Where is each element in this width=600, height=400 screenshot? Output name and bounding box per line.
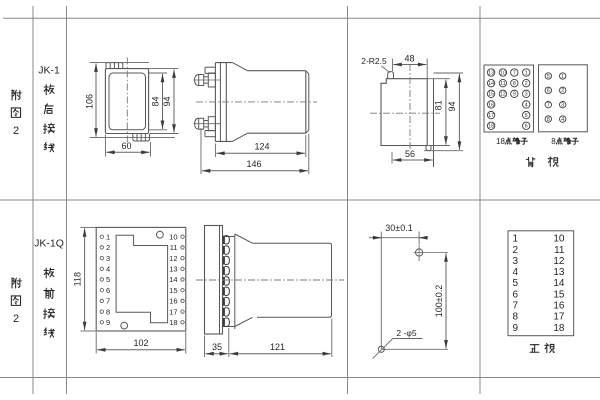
svg-text:8: 8 — [513, 81, 516, 87]
svg-text:10: 10 — [553, 234, 565, 245]
svg-text:12: 12 — [553, 256, 565, 267]
svg-text:15: 15 — [169, 286, 177, 295]
svg-text:106: 106 — [84, 94, 94, 109]
svg-text:9: 9 — [513, 323, 519, 334]
svg-text:9: 9 — [106, 318, 110, 327]
svg-text:48: 48 — [404, 53, 414, 63]
svg-text:3: 3 — [513, 256, 519, 267]
svg-text:14: 14 — [488, 81, 494, 87]
svg-text:4: 4 — [106, 265, 110, 274]
svg-text:94: 94 — [162, 96, 172, 106]
svg-text:10: 10 — [169, 232, 177, 241]
svg-text:17: 17 — [553, 312, 565, 323]
svg-text:16: 16 — [169, 297, 177, 306]
svg-text:1: 1 — [106, 232, 110, 241]
svg-text:5: 5 — [547, 74, 550, 80]
svg-text:5: 5 — [106, 275, 110, 284]
svg-text:17: 17 — [488, 113, 494, 119]
svg-text:118: 118 — [73, 272, 83, 286]
svg-text:146: 146 — [246, 159, 261, 169]
svg-text:3: 3 — [106, 254, 110, 263]
svg-text:3: 3 — [561, 103, 564, 109]
svg-text:18: 18 — [553, 323, 565, 334]
svg-text:60: 60 — [121, 141, 131, 151]
svg-text:12: 12 — [500, 92, 506, 98]
svg-text:2: 2 — [106, 243, 110, 252]
svg-text:2: 2 — [513, 245, 519, 256]
svg-text:7: 7 — [106, 297, 110, 306]
svg-text:6: 6 — [547, 88, 550, 94]
svg-text:16: 16 — [553, 301, 565, 312]
svg-text:4: 4 — [513, 267, 519, 278]
svg-text:16: 16 — [488, 102, 494, 108]
svg-text:2 -φ5: 2 -φ5 — [396, 328, 416, 338]
svg-text:11: 11 — [554, 245, 565, 256]
svg-text:2: 2 — [13, 313, 19, 325]
svg-text:11: 11 — [170, 243, 178, 252]
svg-text:4: 4 — [561, 117, 564, 123]
svg-text:3: 3 — [525, 92, 528, 98]
svg-text:13: 13 — [169, 265, 177, 274]
svg-text:JK-1: JK-1 — [38, 65, 60, 77]
svg-text:8: 8 — [106, 307, 110, 316]
svg-text:7: 7 — [513, 70, 516, 76]
svg-text:121: 121 — [270, 342, 285, 352]
svg-text:84: 84 — [151, 96, 161, 106]
svg-text:124: 124 — [254, 142, 269, 152]
svg-text:7: 7 — [547, 103, 550, 109]
svg-text:30±0.1: 30±0.1 — [385, 223, 412, 233]
svg-text:5: 5 — [513, 278, 519, 289]
svg-text:JK-1Q: JK-1Q — [34, 238, 64, 250]
svg-text:13: 13 — [553, 267, 565, 278]
svg-text:2: 2 — [525, 81, 528, 87]
svg-text:6: 6 — [525, 124, 528, 130]
svg-text:13: 13 — [488, 70, 494, 76]
svg-text:94: 94 — [447, 101, 457, 111]
svg-text:2: 2 — [13, 125, 19, 137]
svg-text:1: 1 — [525, 70, 528, 76]
svg-text:8: 8 — [547, 117, 550, 123]
svg-text:102: 102 — [133, 338, 148, 348]
svg-text:6: 6 — [106, 286, 110, 295]
svg-text:15: 15 — [488, 92, 494, 98]
svg-text:8: 8 — [551, 137, 556, 146]
svg-text:17: 17 — [169, 307, 177, 316]
svg-text:2-R2.5: 2-R2.5 — [361, 56, 387, 66]
svg-text:81: 81 — [434, 100, 444, 110]
svg-text:7: 7 — [513, 301, 519, 312]
svg-text:35: 35 — [212, 342, 222, 352]
svg-text:2: 2 — [561, 88, 564, 94]
svg-text:4: 4 — [525, 102, 528, 108]
svg-text:10: 10 — [500, 70, 506, 76]
svg-text:56: 56 — [405, 149, 415, 159]
svg-text:12: 12 — [169, 254, 177, 263]
svg-text:11: 11 — [500, 81, 505, 87]
svg-text:15: 15 — [553, 289, 565, 300]
svg-text:18: 18 — [496, 137, 505, 146]
svg-text:14: 14 — [169, 275, 177, 284]
svg-text:18: 18 — [169, 318, 177, 327]
svg-text:18: 18 — [488, 124, 494, 130]
svg-text:6: 6 — [513, 289, 519, 300]
svg-text:8: 8 — [513, 312, 519, 323]
svg-text:1: 1 — [561, 74, 564, 80]
svg-text:100±0.2: 100±0.2 — [434, 285, 444, 317]
svg-text:5: 5 — [525, 113, 528, 119]
svg-text:1: 1 — [513, 234, 519, 245]
svg-text:9: 9 — [513, 92, 516, 98]
svg-text:14: 14 — [553, 278, 565, 289]
